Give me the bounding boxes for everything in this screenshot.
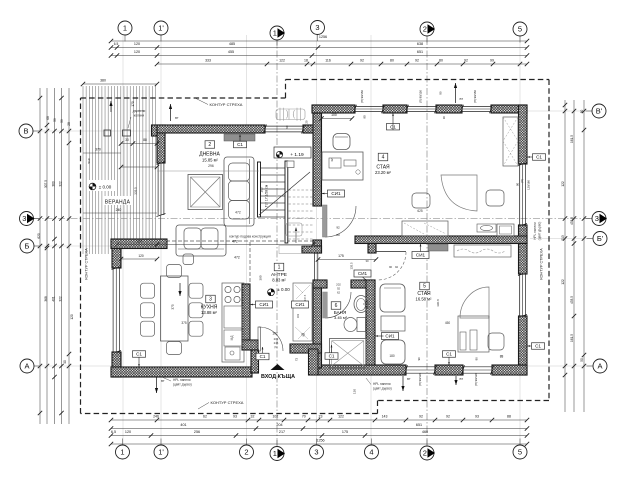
svg-text:ВТ: ВТ — [407, 377, 411, 381]
svg-text:С1: С1 — [535, 344, 541, 349]
svg-text:368: 368 — [44, 296, 48, 302]
svg-text:В: В — [23, 127, 28, 136]
svg-text:72: 72 — [295, 358, 299, 362]
svg-text:92: 92 — [446, 415, 450, 419]
svg-text:70: 70 — [302, 415, 306, 419]
svg-text:120: 120 — [138, 254, 144, 258]
svg-text:ВТ: ВТ — [460, 377, 464, 381]
svg-text:401: 401 — [180, 423, 186, 427]
svg-text:651: 651 — [416, 423, 422, 427]
svg-text:335.5: 335.5 — [134, 187, 138, 195]
svg-text:(цвят дърво): (цвят дърво) — [173, 383, 192, 387]
svg-text:(П) 90/150: (П) 90/150 — [360, 90, 364, 103]
svg-text:20: 20 — [305, 120, 309, 124]
svg-text:А: А — [597, 362, 602, 371]
svg-text:204: 204 — [276, 423, 282, 427]
svg-text:651: 651 — [417, 50, 423, 54]
svg-text:СИ1: СИ1 — [416, 253, 426, 258]
svg-text:3: 3 — [22, 214, 26, 223]
svg-text:1256: 1256 — [319, 35, 327, 39]
svg-text:100: 100 — [331, 113, 337, 117]
svg-text:2: 2 — [208, 142, 211, 148]
svg-text:1: 1 — [123, 24, 127, 33]
svg-text:СИ1: СИ1 — [358, 271, 368, 276]
svg-text:8.03 м²: 8.03 м² — [272, 278, 286, 283]
svg-text:92: 92 — [464, 59, 468, 63]
svg-text:92: 92 — [415, 59, 419, 63]
svg-text:120: 120 — [70, 314, 74, 320]
svg-text:256: 256 — [194, 430, 200, 434]
svg-text:5: 5 — [518, 25, 522, 34]
svg-text:А: А — [24, 362, 29, 371]
svg-text:4: 4 — [382, 155, 385, 161]
svg-text:28: 28 — [67, 122, 71, 126]
svg-text:375: 375 — [171, 304, 175, 310]
svg-text:122: 122 — [561, 181, 565, 187]
svg-text:18: 18 — [304, 59, 308, 63]
svg-text:контур подова конструкция: контур подова конструкция — [229, 234, 271, 238]
svg-text:92: 92 — [360, 59, 364, 63]
svg-text:3: 3 — [595, 214, 599, 223]
svg-text:92: 92 — [395, 265, 399, 269]
svg-text:5: 5 — [518, 448, 522, 457]
svg-text:(П) 90/150: (П) 90/150 — [419, 90, 423, 103]
svg-text:120: 120 — [125, 430, 131, 434]
svg-text:ВХОД КЪЩА: ВХОД КЪЩА — [261, 374, 295, 380]
svg-text:175: 175 — [338, 254, 344, 258]
svg-text:130: 130 — [353, 389, 357, 394]
svg-text:1': 1' — [158, 448, 164, 457]
svg-text:80: 80 — [439, 59, 443, 63]
svg-text:347.5: 347.5 — [303, 294, 307, 301]
svg-text:450: 450 — [445, 321, 451, 325]
svg-text:± 0.00: ± 0.00 — [99, 185, 112, 190]
svg-text:455: 455 — [228, 50, 234, 54]
svg-text:120: 120 — [136, 239, 142, 243]
svg-text:88: 88 — [143, 138, 147, 142]
svg-text:23.20 м²: 23.20 м² — [375, 170, 392, 175]
svg-text:С1: С1 — [260, 354, 266, 359]
svg-text:2: 2 — [423, 25, 427, 34]
svg-text:13.88 м²: 13.88 м² — [201, 310, 218, 315]
svg-text:6.5: 6.5 — [114, 42, 119, 46]
svg-text:1: 1 — [273, 29, 277, 38]
svg-text:3: 3 — [314, 448, 318, 457]
svg-text:213: 213 — [561, 235, 565, 241]
svg-text:90: 90 — [442, 116, 446, 120]
svg-text:1256: 1256 — [316, 439, 324, 443]
svg-text:161.5: 161.5 — [570, 334, 574, 342]
svg-text:390: 390 — [259, 275, 263, 280]
svg-text:240: 240 — [116, 208, 122, 212]
svg-text:122: 122 — [279, 59, 285, 63]
svg-text:88: 88 — [500, 355, 504, 359]
svg-text:МД: МД — [230, 335, 234, 341]
svg-text:90: 90 — [417, 357, 421, 361]
svg-text:90: 90 — [516, 183, 520, 187]
svg-text:СИ1: СИ1 — [295, 302, 305, 307]
svg-text:16.58 м²: 16.58 м² — [416, 297, 433, 302]
svg-text:6: 6 — [335, 303, 338, 309]
svg-text:+ 1.19: + 1.19 — [290, 152, 304, 158]
svg-text:1: 1 — [278, 265, 281, 271]
svg-text:90: 90 — [389, 265, 393, 269]
svg-text:ВЕРАНДА: ВЕРАНДА — [105, 200, 131, 206]
svg-text:(П) 90/150: (П) 90/150 — [473, 90, 477, 103]
svg-text:122: 122 — [338, 415, 344, 419]
svg-text:СИ1: СИ1 — [331, 191, 341, 196]
svg-text:1': 1' — [158, 24, 164, 33]
svg-text:90: 90 — [475, 357, 479, 361]
svg-text:59: 59 — [60, 119, 64, 123]
svg-text:93: 93 — [233, 415, 237, 419]
svg-text:370: 370 — [95, 148, 101, 152]
svg-text:102: 102 — [272, 415, 278, 419]
svg-text:433.5: 433.5 — [570, 296, 574, 304]
svg-text:401: 401 — [52, 296, 56, 302]
svg-text:217: 217 — [279, 430, 285, 434]
svg-text:120: 120 — [134, 42, 140, 46]
svg-text:116: 116 — [325, 59, 331, 63]
svg-text:1: 1 — [120, 448, 124, 457]
svg-text:120: 120 — [134, 50, 140, 54]
svg-text:40: 40 — [63, 360, 67, 364]
svg-text:(П) 90/120: (П) 90/120 — [474, 373, 478, 386]
svg-text:472: 472 — [234, 256, 240, 260]
svg-text:(П) 90/120: (П) 90/120 — [418, 373, 422, 386]
svg-text:3: 3 — [209, 297, 212, 303]
svg-text:122: 122 — [561, 279, 565, 285]
svg-text:638: 638 — [417, 42, 423, 46]
svg-text:92: 92 — [419, 415, 423, 419]
svg-text:175: 175 — [342, 430, 348, 434]
svg-text:В': В' — [596, 107, 603, 116]
svg-text:120/160: 120/160 — [527, 180, 531, 190]
svg-text:380: 380 — [100, 79, 106, 83]
svg-text:1: 1 — [273, 449, 277, 458]
svg-text:307.5: 307.5 — [44, 180, 48, 188]
svg-text:С1: С1 — [329, 354, 335, 359]
svg-text:СИ1: СИ1 — [385, 334, 395, 339]
svg-text:(6): (6) — [274, 345, 277, 349]
svg-text:(П): (П) — [520, 179, 524, 183]
svg-text:С1: С1 — [136, 352, 142, 357]
svg-text:70: 70 — [301, 333, 305, 337]
svg-text:472: 472 — [235, 211, 241, 215]
svg-text:32: 32 — [330, 158, 334, 162]
svg-text:колони: колони — [134, 114, 145, 118]
svg-text:296: 296 — [208, 164, 214, 168]
svg-text:333: 333 — [205, 59, 211, 63]
svg-text:2: 2 — [423, 449, 427, 458]
svg-text:170: 170 — [131, 101, 135, 107]
svg-text:485: 485 — [229, 42, 235, 46]
svg-text:102: 102 — [272, 332, 278, 336]
svg-text:КОНТУР СТРЕХА: КОНТУР СТРЕХА — [211, 400, 244, 405]
svg-text:23: 23 — [319, 415, 323, 419]
svg-text:ВТ: ВТ — [161, 379, 165, 383]
svg-text:Б: Б — [25, 242, 30, 251]
svg-text:472: 472 — [232, 239, 238, 243]
svg-text:92: 92 — [336, 226, 340, 230]
svg-text:15.85 м²: 15.85 м² — [202, 158, 219, 163]
svg-text:С1: С1 — [536, 155, 542, 160]
svg-text:93: 93 — [475, 415, 479, 419]
svg-text:99: 99 — [490, 59, 494, 63]
svg-text:Б': Б' — [597, 234, 604, 243]
svg-text:± 0.00: ± 0.00 — [277, 287, 290, 292]
svg-text:510: 510 — [87, 158, 91, 163]
svg-text:дървени: дървени — [133, 109, 146, 113]
svg-text:90: 90 — [363, 115, 367, 119]
svg-text:HPL панели: HPL панели — [533, 222, 537, 240]
svg-text:246: 246 — [153, 415, 159, 419]
svg-text:80: 80 — [336, 233, 340, 237]
svg-text:5: 5 — [423, 284, 426, 290]
svg-text:ВТ: ВТ — [175, 116, 179, 120]
svg-text:143: 143 — [382, 415, 388, 419]
svg-text:3.45 м²: 3.45 м² — [334, 315, 348, 320]
svg-text:390.8: 390.8 — [436, 299, 440, 307]
svg-text:88: 88 — [507, 415, 511, 419]
svg-text:2: 2 — [244, 448, 248, 457]
svg-text:180: 180 — [389, 354, 395, 358]
svg-text:375: 375 — [181, 321, 187, 325]
svg-text:90: 90 — [439, 91, 443, 95]
svg-text:6.5: 6.5 — [111, 430, 116, 434]
svg-text:161.5: 161.5 — [570, 135, 574, 143]
svg-text:68: 68 — [46, 116, 50, 120]
svg-text:322: 322 — [59, 296, 63, 302]
svg-text:50: 50 — [580, 358, 584, 362]
svg-text:80: 80 — [390, 59, 394, 63]
svg-text:360: 360 — [52, 181, 56, 187]
svg-text:КОНТУР СТРЕХА: КОНТУР СТРЕХА — [540, 248, 544, 280]
svg-text:30: 30 — [125, 138, 129, 142]
svg-text:62: 62 — [203, 415, 207, 419]
svg-text:182: 182 — [296, 313, 300, 318]
svg-text:КОНТУР СТРЕХА: КОНТУР СТРЕХА — [210, 102, 243, 107]
svg-text:С1: С1 — [237, 142, 243, 147]
svg-text:30: 30 — [365, 259, 369, 263]
svg-text:СИ1: СИ1 — [259, 302, 269, 307]
svg-text:32: 32 — [251, 415, 255, 419]
svg-text:С1: С1 — [446, 352, 452, 357]
svg-text:(цвят дърво): (цвят дърво) — [373, 387, 392, 391]
svg-text:3: 3 — [315, 23, 319, 32]
svg-text:4: 4 — [369, 448, 373, 457]
svg-text:460: 460 — [422, 430, 428, 434]
svg-text:59: 59 — [53, 118, 57, 122]
svg-text:90: 90 — [285, 125, 289, 129]
svg-text:62: 62 — [337, 291, 341, 295]
svg-text:HPL панели: HPL панели — [373, 382, 391, 386]
svg-text:ВТ: ВТ — [460, 97, 464, 101]
svg-text:Тст 17.1/28 см: Тст 17.1/28 см — [265, 184, 269, 207]
svg-text:HPL панели: HPL панели — [173, 378, 191, 382]
svg-text:КОНТУР СТРЕХА: КОНТУР СТРЕХА — [85, 248, 89, 280]
svg-text:135.5: 135.5 — [350, 262, 354, 269]
svg-text:620: 620 — [37, 233, 41, 239]
svg-text:625: 625 — [417, 209, 423, 213]
svg-text:30: 30 — [458, 238, 462, 242]
svg-text:322: 322 — [59, 181, 63, 187]
svg-text:(цвят дърво): (цвят дърво) — [538, 222, 542, 241]
svg-text:166: 166 — [260, 187, 264, 193]
